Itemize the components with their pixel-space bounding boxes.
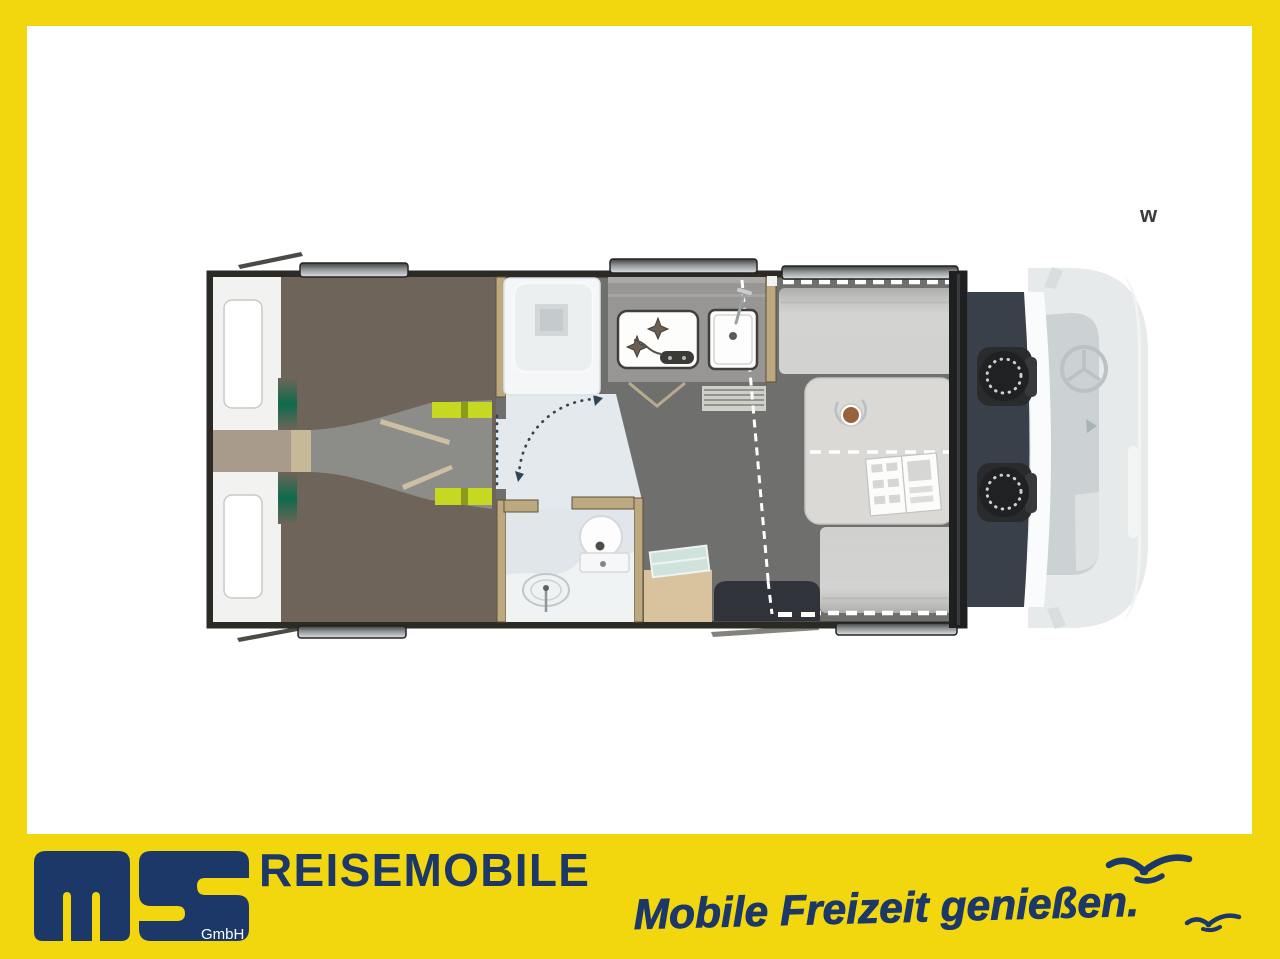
svg-text:w: w <box>1139 202 1158 227</box>
svg-text:Mobile Freizeit genießen.: Mobile Freizeit genießen. <box>633 879 1139 939</box>
svg-text:GmbH: GmbH <box>201 926 244 943</box>
svg-text:REISEMOBILE: REISEMOBILE <box>259 844 590 896</box>
